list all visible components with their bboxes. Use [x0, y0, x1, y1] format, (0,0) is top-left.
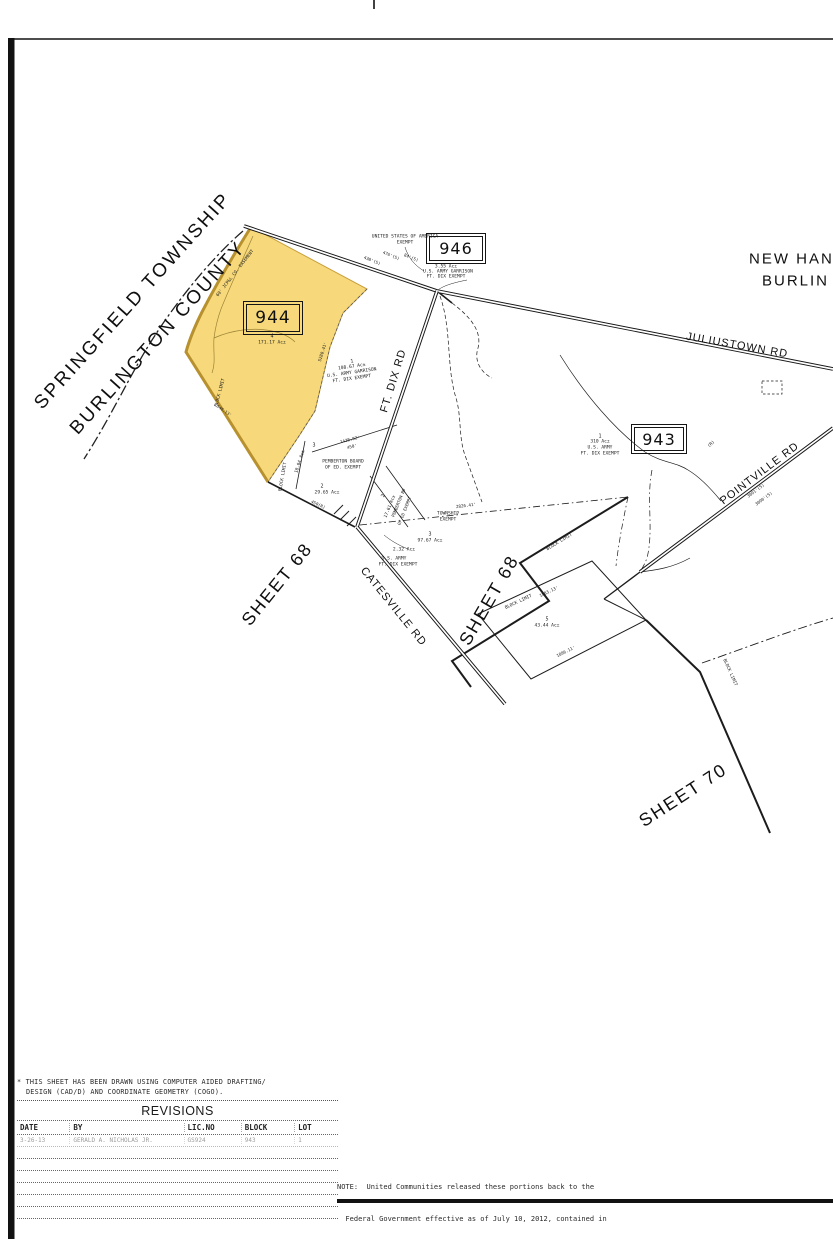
parcel-boundaries	[268, 247, 833, 833]
revisions-entry-row: 3-26-13 GERALD A. NICHOLAS JR. GS924 943…	[17, 1135, 338, 1147]
revisions-empty-row	[17, 1147, 338, 1159]
revision-licno: GS924	[184, 1137, 241, 1144]
lot-2-number: 2	[320, 485, 323, 490]
revisions-empty-row	[17, 1159, 338, 1171]
township-exempt-2: EXEMPT	[440, 518, 457, 523]
parcel-232-acres: 2.32 Ac±	[393, 549, 415, 554]
dotted-separator	[17, 1097, 338, 1101]
lot-5-acres: 43.44 Ac±	[535, 625, 560, 630]
map-canvas	[0, 0, 833, 1239]
sheet-frame	[8, 0, 833, 1239]
revision-lot: 1	[294, 1137, 338, 1144]
revisions-col-lot: LOT	[294, 1123, 338, 1132]
tax-map-sheet: SPRINGFIELD TOWNSHIPBURLINGTON COUNTYNEW…	[0, 0, 833, 1239]
revisions-header-row: DATE BY LIC.NO BLOCK LOT	[17, 1120, 338, 1135]
adjacent-township-name: NEW HAN	[749, 252, 833, 267]
lot-5-number: 5	[545, 618, 548, 623]
lot-4-acres: 171.17 Ac±	[258, 341, 286, 346]
lot-2-acres: 29.65 Ac±	[315, 492, 340, 497]
owner-usa-line2: EXEMPT	[397, 241, 414, 246]
revisions-title: REVISIONS	[17, 1104, 338, 1118]
revisions-col-block: BLOCK	[241, 1123, 294, 1132]
drafting-footnote-line2: DESIGN (CAD/D) AND COORDINATE GEOMETRY (…	[17, 1087, 338, 1097]
bottom-border-line	[337, 1199, 833, 1203]
revisions-col-date: DATE	[17, 1123, 69, 1132]
lot-943-acres: 310 Ac±	[590, 441, 609, 446]
revisions-col-by: BY	[69, 1123, 183, 1132]
revision-date: 3-26-13	[17, 1137, 69, 1144]
legal-block: * THIS SHEET HAS BEEN DRAWN USING COMPUT…	[17, 1077, 338, 1219]
revision-by: GERALD A. NICHOLAS JR.	[69, 1137, 183, 1144]
revisions-table: DATE BY LIC.NO BLOCK LOT 3-26-13 GERALD …	[17, 1120, 338, 1219]
revisions-empty-row	[17, 1171, 338, 1183]
drafting-footnote-line1: * THIS SHEET HAS BEEN DRAWN USING COMPUT…	[17, 1077, 338, 1087]
lot-3-number: 3	[312, 444, 315, 449]
block-946-box: 946	[429, 236, 483, 261]
lot-943-owner-2: FT. DIX EXEMPT	[581, 453, 620, 458]
block-944-box: 944	[246, 304, 300, 332]
lot-3b-number: 3	[428, 533, 431, 538]
revisions-empty-row	[17, 1183, 338, 1195]
army-2: FT. DIX EXEMPT	[379, 563, 418, 568]
release-note-line1: NOTE: United Communities released these …	[337, 1182, 677, 1193]
pemberton-board-2: OF ED. EXEMPT	[325, 466, 361, 471]
revisions-col-licno: LIC.NO	[184, 1123, 241, 1132]
revisions-empty-row	[17, 1195, 338, 1207]
road-ft-dix-line	[357, 291, 437, 527]
lot-4-number: 4	[270, 335, 273, 340]
block-943-box: 943	[634, 427, 684, 451]
drafting-footnote: * THIS SHEET HAS BEEN DRAWN USING COMPUT…	[17, 1077, 338, 1097]
revisions-empty-row	[17, 1207, 338, 1219]
lot-943-owner-1: U.S. ARMY	[588, 447, 613, 452]
parcel-355-owner-2: FT. DIX EXEMPT	[427, 276, 466, 281]
lot-3b-acres: 97.67 Ac±	[418, 539, 443, 544]
adjacent-county-name: BURLIN	[762, 274, 829, 289]
release-note-line2: Federal Government effective as of July …	[337, 1214, 677, 1225]
revision-block: 943	[241, 1137, 294, 1144]
